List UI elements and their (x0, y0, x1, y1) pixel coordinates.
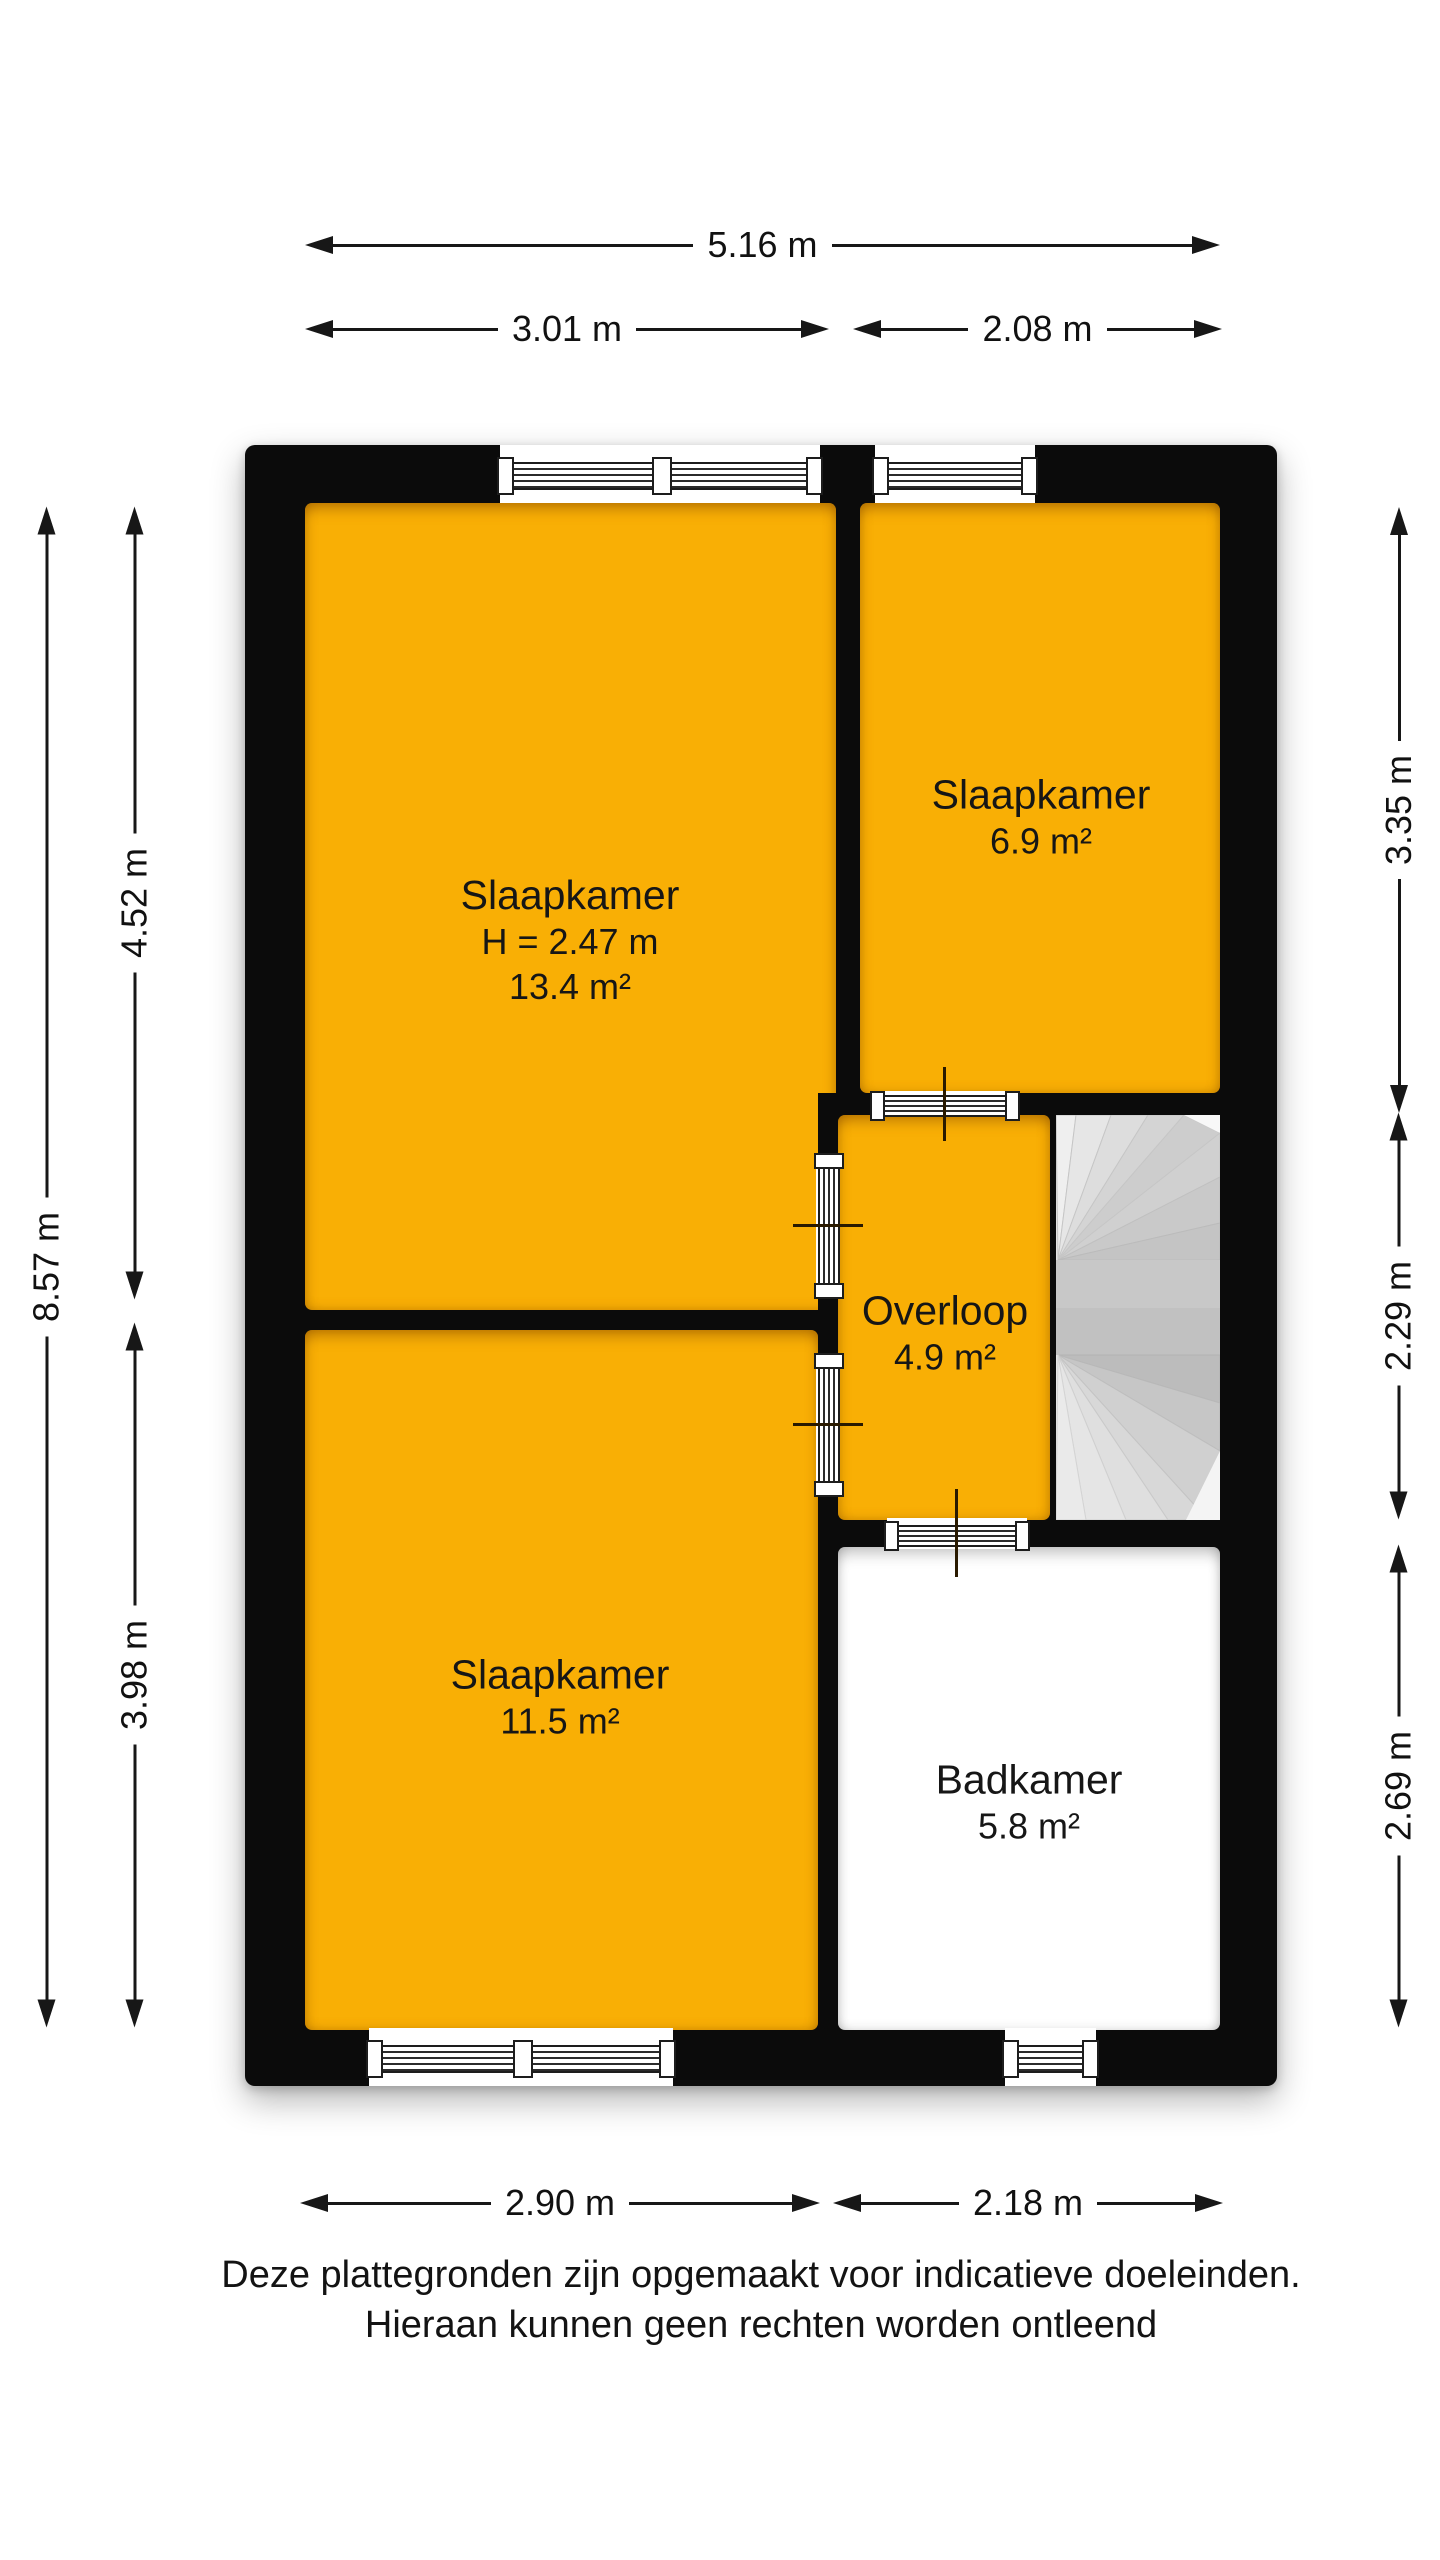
label-bedroom-small: Slaapkamer 6.9 m² (932, 771, 1151, 864)
arrow-right-icon (1390, 1113, 1408, 1141)
window-jamb-icon (806, 457, 823, 495)
dim-label: 3.01 m (498, 312, 636, 346)
arrow-left-icon (833, 2194, 861, 2212)
room-name: Slaapkamer (461, 871, 680, 919)
arrow-left-icon (38, 2000, 56, 2028)
dim-left-total: 8.57 m (30, 507, 64, 2028)
arrow-right-icon (1192, 236, 1220, 254)
arrow-left-icon (853, 320, 881, 338)
door-jamb-icon (814, 1481, 844, 1497)
dim-left-upper: 4.52 m (118, 507, 152, 1300)
arrow-right-icon (1194, 320, 1222, 338)
arrow-left-icon (305, 236, 333, 254)
disclaimer-line-1: Deze plattegronden zijn opgemaakt voor i… (82, 2250, 1440, 2300)
window-jamb-icon (1002, 2040, 1019, 2078)
dim-top-left: 3.01 m (305, 312, 829, 346)
room-name: Badkamer (936, 1756, 1123, 1804)
door-jamb-icon (884, 1521, 899, 1551)
window-glazing-icon (1009, 2045, 1092, 2073)
door-jamb-icon (814, 1353, 844, 1369)
label-bathroom: Badkamer 5.8 m² (936, 1756, 1123, 1849)
door-jamb-icon (870, 1091, 885, 1121)
dim-right-middle: 2.29 m (1382, 1113, 1416, 1520)
window-jamb-icon (366, 2040, 383, 2078)
window-top-small (875, 445, 1035, 503)
dim-top-right: 2.08 m (853, 312, 1222, 346)
room-name: Slaapkamer (451, 1651, 670, 1699)
arrow-right-icon (1195, 2194, 1223, 2212)
window-bottom-small (1005, 2028, 1096, 2086)
dim-label: 8.57 m (30, 1198, 64, 1336)
label-landing: Overloop 4.9 m² (862, 1287, 1028, 1380)
dim-bottom-right: 2.18 m (833, 2186, 1223, 2220)
arrow-right-icon (1390, 507, 1408, 535)
floor-plan: Slaapkamer H = 2.47 m 13.4 m² Slaapkamer… (245, 445, 1277, 2086)
arrow-left-icon (1390, 1085, 1408, 1113)
arrow-right-icon (126, 1323, 144, 1351)
dim-bottom-left: 2.90 m (300, 2186, 820, 2220)
arrow-left-icon (300, 2194, 328, 2212)
door-tick (955, 1489, 958, 1577)
arrow-right-icon (1390, 1545, 1408, 1573)
room-ceiling-height: H = 2.47 m (461, 919, 680, 964)
window-mullion-icon (513, 2040, 533, 2078)
disclaimer: Deze plattegronden zijn opgemaakt voor i… (0, 2250, 1440, 2350)
door-jamb-icon (1005, 1091, 1020, 1121)
dim-label: 2.90 m (491, 2186, 629, 2220)
arrow-left-icon (126, 2000, 144, 2028)
window-jamb-icon (1082, 2040, 1099, 2078)
dim-label: 2.29 m (1382, 1247, 1416, 1385)
room-area: 5.8 m² (936, 1804, 1123, 1849)
window-mullion-icon (652, 457, 672, 495)
dim-label: 4.52 m (118, 834, 152, 972)
door-tick (943, 1067, 946, 1141)
window-jamb-icon (872, 457, 889, 495)
room-area: 11.5 m² (451, 1699, 670, 1744)
window-top-large (500, 445, 820, 503)
arrow-right-icon (792, 2194, 820, 2212)
label-bedroom-lower: Slaapkamer 11.5 m² (451, 1651, 670, 1744)
door-jamb-icon (814, 1153, 844, 1169)
arrow-right-icon (126, 507, 144, 535)
door-tick (793, 1224, 863, 1227)
room-area: 6.9 m² (932, 819, 1151, 864)
arrow-right-icon (38, 507, 56, 535)
dim-label: 2.69 m (1382, 1717, 1416, 1855)
door-jamb-icon (1015, 1521, 1030, 1551)
dim-label: 2.08 m (968, 312, 1106, 346)
room-area: 13.4 m² (461, 964, 680, 1009)
label-bedroom-large: Slaapkamer H = 2.47 m 13.4 m² (461, 871, 680, 1009)
staircase (1056, 1115, 1220, 1520)
door-jamb-icon (814, 1283, 844, 1299)
disclaimer-line-2: Hieraan kunnen geen rechten worden ontle… (82, 2300, 1440, 2350)
dim-top-total: 5.16 m (305, 228, 1220, 262)
dim-label: 5.16 m (693, 228, 831, 262)
door-tick (793, 1423, 863, 1426)
window-glazing-icon (879, 462, 1031, 490)
window-jamb-icon (1021, 457, 1038, 495)
arrow-left-icon (305, 320, 333, 338)
arrow-right-icon (801, 320, 829, 338)
dim-label: 3.98 m (118, 1606, 152, 1744)
window-bottom-large (369, 2028, 673, 2086)
window-jamb-icon (497, 457, 514, 495)
room-area: 4.9 m² (862, 1335, 1028, 1380)
dim-label: 2.18 m (959, 2186, 1097, 2220)
staircase-treads (1056, 1115, 1220, 1520)
room-name: Overloop (862, 1287, 1028, 1335)
dim-right-lower: 2.69 m (1382, 1545, 1416, 2028)
window-jamb-icon (659, 2040, 676, 2078)
dim-label: 3.35 m (1382, 741, 1416, 879)
dim-right-upper: 3.35 m (1382, 507, 1416, 1113)
arrow-left-icon (1390, 2000, 1408, 2028)
dim-left-lower: 3.98 m (118, 1323, 152, 2028)
arrow-left-icon (126, 1272, 144, 1300)
arrow-left-icon (1390, 1492, 1408, 1520)
room-name: Slaapkamer (932, 771, 1151, 819)
